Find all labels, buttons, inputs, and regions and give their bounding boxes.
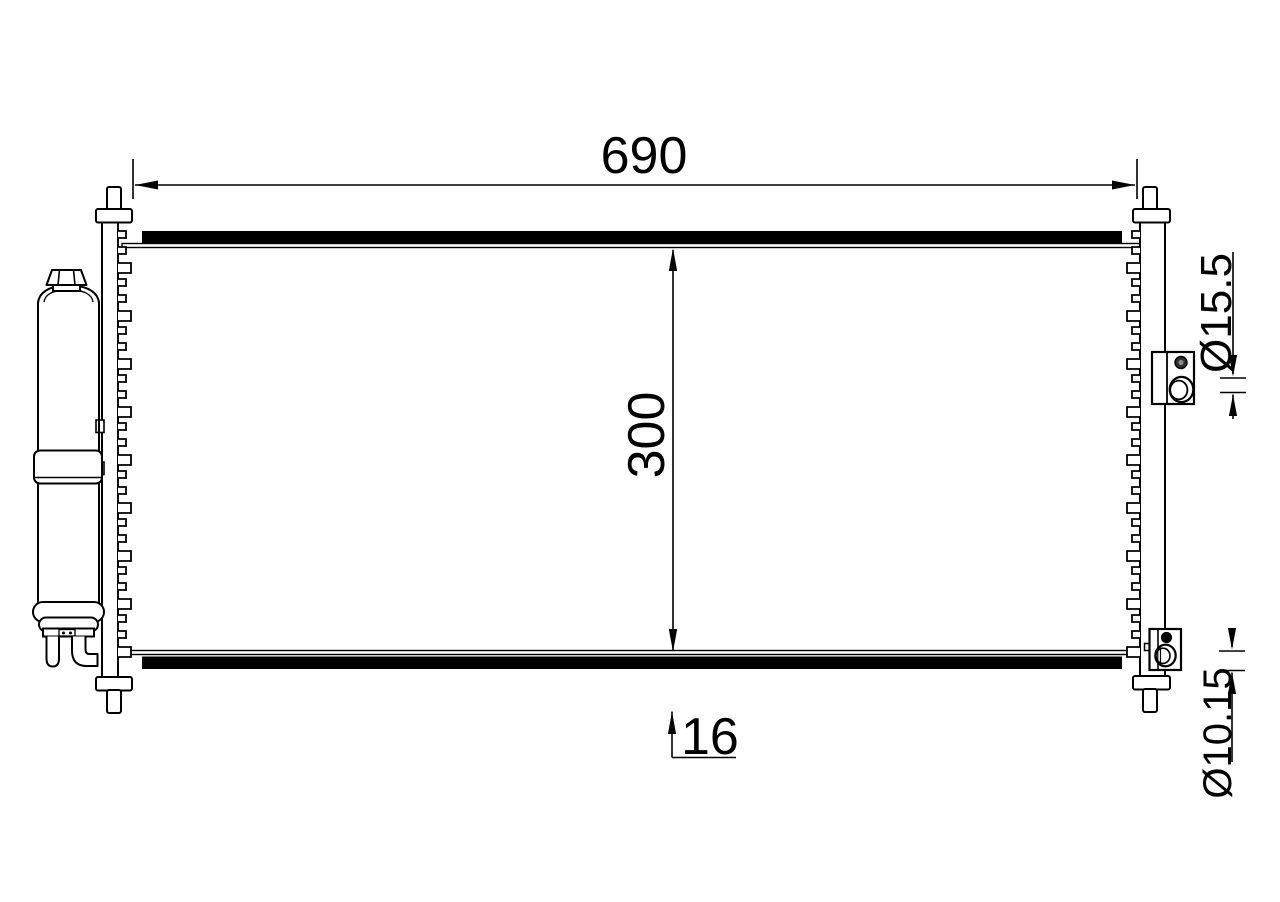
dimension-lower-port: Ø10.15 xyxy=(1196,628,1245,799)
dimension-width: 690 xyxy=(133,127,1137,199)
left-rail-teeth xyxy=(118,231,131,657)
width-arrow-left xyxy=(135,181,158,190)
dimension-height: 300 xyxy=(618,249,677,652)
drier-hex-nut xyxy=(47,270,87,285)
right-rail-body xyxy=(1140,222,1165,676)
right-bottom-pin xyxy=(1143,689,1157,712)
condenser-technical-drawing: 690 300 16 Ø15.5 Ø10.15 xyxy=(0,0,1280,902)
core-bottom-strip xyxy=(122,651,1144,655)
receiver-drier xyxy=(33,270,104,667)
dimension-depth: 16 xyxy=(668,708,739,766)
drier-base-dot-left xyxy=(62,632,65,635)
drier-base-dot-right xyxy=(69,632,72,635)
left-top-flange xyxy=(96,209,132,223)
drier-straight-tube xyxy=(47,637,60,667)
upper-port-fitting xyxy=(1152,352,1194,404)
depth-label: 16 xyxy=(681,708,739,766)
core-top-strip xyxy=(122,244,1144,248)
left-side-rail xyxy=(96,187,132,713)
drier-clamp-band xyxy=(34,451,102,484)
core-bottom-plate xyxy=(142,657,1122,670)
height-arrow-top xyxy=(669,249,677,272)
right-top-pin xyxy=(1143,187,1157,210)
right-bottom-flange xyxy=(1133,676,1170,690)
lower-port-label: Ø10.15 xyxy=(1196,667,1240,798)
left-bottom-pin xyxy=(107,690,121,713)
height-arrow-bottom xyxy=(669,629,677,652)
core-top-plate xyxy=(142,231,1122,243)
lower-port-fitting xyxy=(1145,629,1182,670)
drier-elbow-tube xyxy=(72,637,98,667)
upper-port-label: Ø15.5 xyxy=(1192,253,1241,373)
height-label: 300 xyxy=(618,392,676,479)
upper-port-bolt-center xyxy=(1178,360,1183,365)
left-top-pin xyxy=(107,187,121,210)
right-rail-teeth xyxy=(1127,231,1140,657)
lower-port-bolt xyxy=(1161,632,1172,643)
width-label: 690 xyxy=(601,127,688,185)
width-arrow-right xyxy=(1112,181,1135,190)
dimension-upper-port: Ø15.5 xyxy=(1192,252,1246,419)
left-bottom-flange xyxy=(96,677,132,691)
drier-base-detail xyxy=(59,630,75,637)
lower-port-arrow-down xyxy=(1228,628,1236,650)
right-top-flange xyxy=(1133,209,1170,223)
